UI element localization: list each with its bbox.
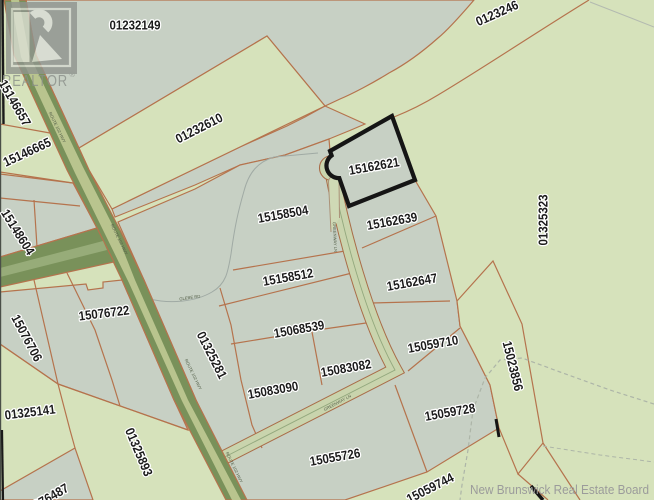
svg-text:New Brunswick Real Estate Boar: New Brunswick Real Estate Board	[470, 482, 649, 497]
svg-text:01325323: 01325323	[536, 195, 551, 246]
svg-text:®: ®	[70, 70, 76, 79]
svg-text:01232149: 01232149	[110, 18, 161, 33]
